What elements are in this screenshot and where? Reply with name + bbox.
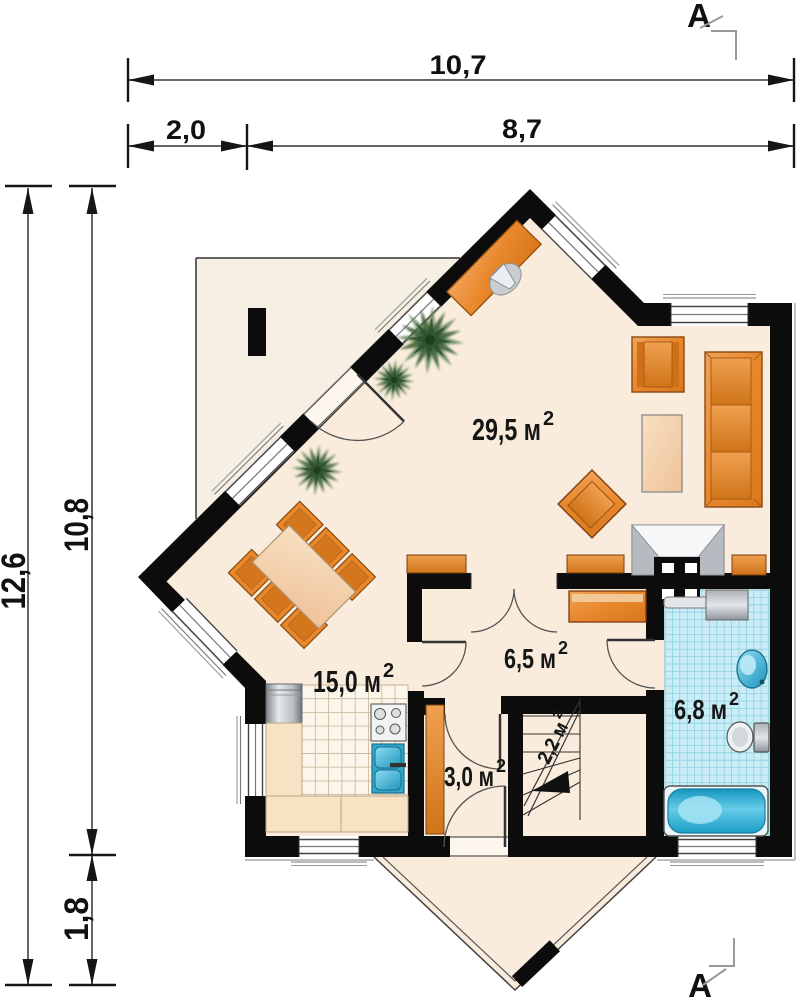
svg-text:15,0 м: 15,0 м	[313, 664, 381, 699]
svg-text:10,7: 10,7	[430, 50, 487, 80]
svg-text:12,6: 12,6	[0, 553, 33, 610]
svg-text:8,7: 8,7	[502, 114, 542, 144]
svg-text:29,5 м: 29,5 м	[472, 412, 541, 447]
svg-text:2: 2	[729, 689, 739, 709]
svg-text:6,5 м: 6,5 м	[504, 643, 556, 674]
svg-text:2,0: 2,0	[166, 115, 206, 145]
svg-text:6,8 м: 6,8 м	[674, 694, 727, 725]
svg-text:3,0 м: 3,0 м	[444, 761, 494, 792]
svg-text:2: 2	[543, 408, 554, 430]
svg-text:A: A	[688, 967, 712, 1000]
svg-text:1,8: 1,8	[58, 897, 96, 941]
svg-text:2: 2	[496, 756, 506, 776]
svg-text:2: 2	[558, 638, 568, 658]
svg-text:A: A	[687, 0, 711, 34]
svg-text:10,8: 10,8	[58, 498, 96, 552]
svg-text:2: 2	[383, 660, 394, 682]
